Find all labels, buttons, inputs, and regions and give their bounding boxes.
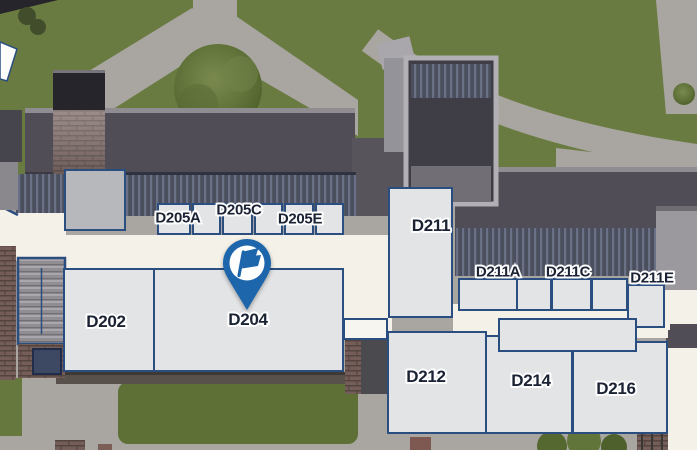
wall-band xyxy=(56,375,362,384)
room-label-d211a: D211A xyxy=(476,264,520,281)
room-d211a[interactable] xyxy=(458,278,518,311)
room-label-d202: D202 xyxy=(86,312,125,332)
room-label-d205c: D205C xyxy=(216,202,261,219)
ribbed-roof-edge xyxy=(98,172,356,175)
roof-piece xyxy=(0,110,22,162)
grass-left-edge xyxy=(0,378,22,436)
selected-location-pin[interactable] xyxy=(219,237,275,315)
room-label-d205a: D205A xyxy=(155,210,200,227)
room-d211c[interactable] xyxy=(551,278,592,311)
brick-post xyxy=(410,437,431,450)
campus-map-canvas[interactable]: D205A D205C D205E D211 D211A D211C D211E… xyxy=(0,0,697,450)
ribbed-roof xyxy=(16,174,66,216)
wall-edge xyxy=(56,372,362,375)
room-label-d211e: D211E xyxy=(630,270,674,287)
hedge xyxy=(30,19,46,35)
room-unlabeled-annex[interactable] xyxy=(64,169,126,231)
brick-pillar xyxy=(345,340,361,394)
room-d211[interactable] xyxy=(388,187,453,318)
grass-courtyard xyxy=(118,382,358,444)
tree-highlight xyxy=(222,56,258,92)
room-label-d211c: D211C xyxy=(546,264,590,281)
room-label-d212: D212 xyxy=(406,367,445,387)
brick-column xyxy=(0,246,16,380)
shaft xyxy=(361,338,387,394)
room-label-d211: D211 xyxy=(412,216,451,236)
brick-bit xyxy=(55,440,85,450)
bush xyxy=(673,83,695,105)
room-label-d216: D216 xyxy=(596,379,635,399)
brick-bit xyxy=(98,444,112,450)
room-d211-cell[interactable] xyxy=(516,278,552,311)
room-label-d205e: D205E xyxy=(278,211,322,228)
room-d211-cell[interactable] xyxy=(591,278,628,311)
room-unlabeled-corridor[interactable] xyxy=(498,318,637,352)
wall-piece xyxy=(0,162,18,210)
stairwell xyxy=(18,258,65,378)
room-small-annex[interactable] xyxy=(343,318,388,340)
room-label-d214: D214 xyxy=(511,371,550,391)
